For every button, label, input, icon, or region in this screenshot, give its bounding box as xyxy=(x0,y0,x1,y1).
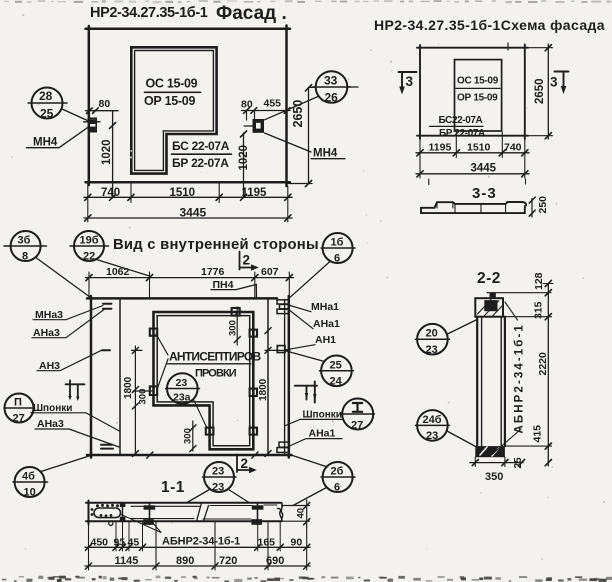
svg-text:740: 740 xyxy=(504,142,522,154)
svg-text:23: 23 xyxy=(426,344,438,356)
svg-text:1510: 1510 xyxy=(170,187,196,199)
svg-text:25: 25 xyxy=(40,107,54,121)
svg-text:23: 23 xyxy=(212,466,224,478)
svg-text:28: 28 xyxy=(39,89,53,103)
svg-text:БС 22-07А: БС 22-07А xyxy=(172,139,230,153)
svg-text:1195: 1195 xyxy=(242,187,268,199)
svg-text:2б: 2б xyxy=(331,466,344,478)
svg-text:27: 27 xyxy=(351,420,363,432)
svg-text:НР2-34.27.35-1б-1: НР2-34.27.35-1б-1 xyxy=(90,5,208,21)
svg-text:165: 165 xyxy=(258,536,276,548)
svg-text:Вид с внутренней стороны: Вид с внутренней стороны xyxy=(113,237,319,253)
svg-text:450: 450 xyxy=(91,536,109,548)
svg-text:350: 350 xyxy=(485,471,503,483)
svg-text:6: 6 xyxy=(334,482,340,494)
svg-text:90: 90 xyxy=(291,536,303,548)
svg-text:415: 415 xyxy=(532,425,544,443)
svg-text:128: 128 xyxy=(533,272,545,290)
svg-text:33: 33 xyxy=(324,74,338,88)
svg-text:2-2: 2-2 xyxy=(477,270,501,287)
svg-text:АБНР2-34-1б-1: АБНР2-34-1б-1 xyxy=(162,536,240,548)
svg-text:МН4: МН4 xyxy=(33,137,58,149)
svg-text:3445: 3445 xyxy=(471,163,497,175)
svg-text:19б: 19б xyxy=(80,235,99,247)
svg-text:8: 8 xyxy=(22,251,28,263)
svg-text:1195: 1195 xyxy=(429,142,452,154)
svg-text:607: 607 xyxy=(261,266,279,278)
svg-text:1800: 1800 xyxy=(123,376,134,399)
svg-text:1776: 1776 xyxy=(201,266,225,278)
svg-text:МН4: МН4 xyxy=(313,148,338,160)
svg-text:10: 10 xyxy=(24,487,36,499)
svg-text:1800: 1800 xyxy=(258,378,269,401)
svg-text:4б: 4б xyxy=(22,471,35,483)
svg-text:2: 2 xyxy=(241,456,249,471)
svg-text:1020: 1020 xyxy=(238,145,250,171)
svg-text:24б: 24б xyxy=(423,414,442,426)
svg-text:80: 80 xyxy=(99,98,111,110)
svg-text:2650: 2650 xyxy=(291,100,305,128)
svg-text:720: 720 xyxy=(219,555,237,567)
svg-text:1б: 1б xyxy=(331,237,344,249)
svg-text:315: 315 xyxy=(533,301,545,319)
svg-text:АНа3: АНа3 xyxy=(37,418,64,430)
svg-text:2: 2 xyxy=(243,253,251,268)
svg-text:ОР 15-09: ОР 15-09 xyxy=(457,93,498,104)
svg-text:890: 890 xyxy=(176,555,194,567)
svg-text:1145: 1145 xyxy=(115,555,139,567)
svg-text:22: 22 xyxy=(83,251,95,263)
svg-text:23: 23 xyxy=(176,377,188,389)
svg-text:БР 22-07А: БР 22-07А xyxy=(172,156,229,170)
svg-text:3б: 3б xyxy=(18,235,31,247)
svg-text:250: 250 xyxy=(537,196,549,214)
svg-text:ОР 15-09: ОР 15-09 xyxy=(144,94,195,108)
svg-text:23: 23 xyxy=(212,482,224,494)
svg-text:БС22-07А: БС22-07А xyxy=(439,115,483,126)
svg-text:1-1: 1-1 xyxy=(161,479,185,496)
svg-text:3: 3 xyxy=(406,74,414,89)
svg-text:2650: 2650 xyxy=(534,78,546,104)
svg-text:3445: 3445 xyxy=(180,205,207,219)
svg-text:23а: 23а xyxy=(173,392,191,404)
svg-text:АБНР2-34-1б-1: АБНР2-34-1б-1 xyxy=(514,323,526,433)
svg-text:20: 20 xyxy=(426,328,438,340)
svg-text:45: 45 xyxy=(128,536,140,548)
svg-text:ПРОВКИ: ПРОВКИ xyxy=(195,368,237,380)
svg-text:95: 95 xyxy=(114,536,126,548)
svg-text:2220: 2220 xyxy=(537,352,549,376)
svg-text:300: 300 xyxy=(138,389,149,405)
svg-text:ОС 15-09: ОС 15-09 xyxy=(457,76,499,87)
svg-text:АНТИСЕПТИРОВ: АНТИСЕПТИРОВ xyxy=(169,350,261,364)
svg-text:АН1: АН1 xyxy=(315,334,336,346)
svg-text:80: 80 xyxy=(241,99,253,111)
svg-text:МНа1: МНа1 xyxy=(311,301,339,313)
svg-text:1510: 1510 xyxy=(467,142,491,154)
svg-text:25: 25 xyxy=(330,359,342,371)
svg-text:26: 26 xyxy=(325,91,339,105)
svg-text:300: 300 xyxy=(228,320,239,336)
svg-text:24: 24 xyxy=(330,376,343,388)
svg-text:690: 690 xyxy=(266,555,284,567)
svg-text:БР 22-07А: БР 22-07А xyxy=(439,128,485,139)
svg-text:1062: 1062 xyxy=(106,266,130,278)
svg-text:Фасад .: Фасад . xyxy=(216,3,287,24)
svg-text:1020: 1020 xyxy=(101,139,113,165)
svg-text:455: 455 xyxy=(264,98,282,110)
svg-text:П: П xyxy=(14,397,22,409)
svg-text:25: 25 xyxy=(513,457,524,469)
svg-text:3: 3 xyxy=(550,75,558,90)
svg-text:23: 23 xyxy=(426,430,438,442)
svg-text:40: 40 xyxy=(296,508,307,519)
svg-text:АНа1: АНа1 xyxy=(309,428,336,440)
svg-text:АНа1: АНа1 xyxy=(313,318,340,330)
svg-text:300: 300 xyxy=(183,428,194,444)
svg-text:НР2-34.27.35-1б-1Схема фасада: НР2-34.27.35-1б-1Схема фасада xyxy=(374,17,605,33)
svg-text:ОС 15-09: ОС 15-09 xyxy=(146,77,198,91)
svg-text:27: 27 xyxy=(13,413,25,425)
svg-text:6: 6 xyxy=(334,253,340,265)
svg-text:740: 740 xyxy=(101,187,120,199)
svg-text:3-3: 3-3 xyxy=(472,185,497,202)
